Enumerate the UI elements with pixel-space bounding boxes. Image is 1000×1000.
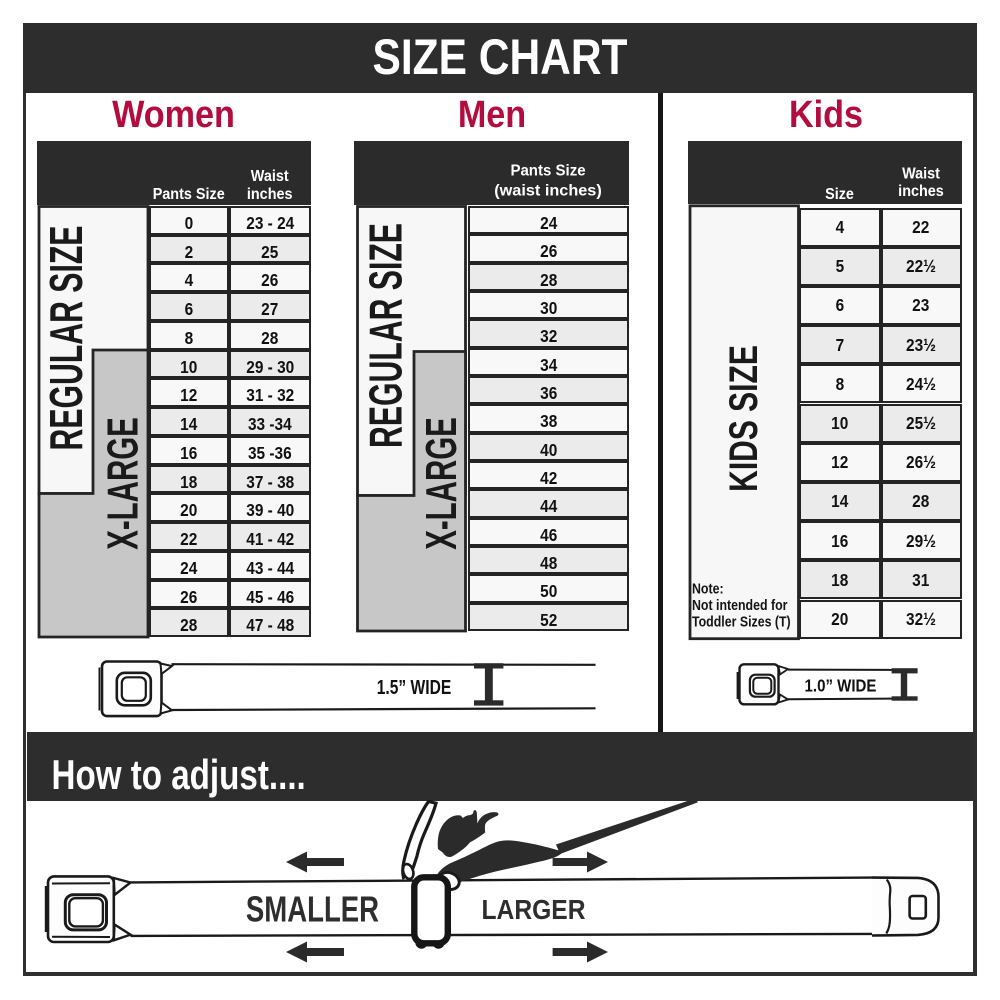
svg-text:Pants Size: Pants Size: [510, 162, 585, 179]
svg-text:How to adjust....: How to adjust....: [52, 752, 306, 799]
svg-text:1.0” WIDE: 1.0” WIDE: [805, 676, 877, 695]
svg-text:Note:: Note:: [692, 581, 724, 597]
svg-text:Not intended for: Not intended for: [692, 597, 788, 613]
svg-text:Size: Size: [825, 186, 854, 204]
svg-text:Kids: Kids: [789, 92, 863, 135]
svg-text:KIDS SIZE: KIDS SIZE: [722, 345, 766, 492]
svg-text:Waist: Waist: [902, 165, 940, 183]
svg-text:REGULAR SIZE: REGULAR SIZE: [42, 226, 93, 451]
svg-text:Waist: Waist: [251, 168, 289, 186]
svg-text:Men: Men: [458, 92, 526, 135]
svg-text:LARGER: LARGER: [482, 894, 586, 926]
svg-text:(waist inches): (waist inches): [494, 183, 602, 200]
svg-text:inches: inches: [898, 183, 944, 201]
svg-text:SMALLER: SMALLER: [246, 889, 379, 930]
svg-text:Pants Size: Pants Size: [153, 186, 225, 204]
svg-text:Toddler Sizes (T): Toddler Sizes (T): [692, 614, 791, 630]
svg-text:SIZE CHART: SIZE CHART: [373, 29, 628, 85]
svg-text:X-LARGE: X-LARGE: [97, 417, 146, 550]
svg-text:Women: Women: [112, 92, 235, 135]
svg-text:1.5” WIDE: 1.5” WIDE: [377, 676, 452, 698]
svg-text:REGULAR SIZE: REGULAR SIZE: [361, 223, 412, 448]
svg-text:X-LARGE: X-LARGE: [416, 417, 465, 550]
svg-text:inches: inches: [247, 186, 293, 204]
